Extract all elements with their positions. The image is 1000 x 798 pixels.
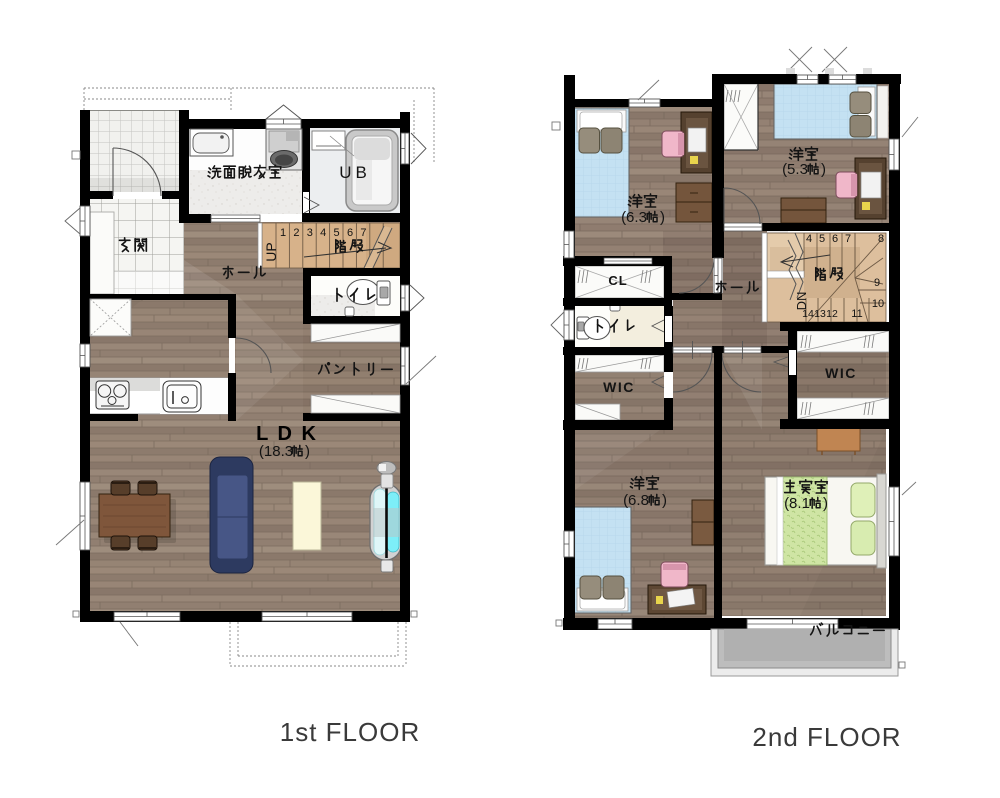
svg-text:7: 7 — [845, 233, 851, 245]
svg-text:7: 7 — [360, 227, 366, 239]
svg-text:5: 5 — [334, 227, 340, 239]
svg-text:5: 5 — [819, 233, 825, 245]
svg-text:1: 1 — [280, 227, 286, 239]
svg-text:): ) — [662, 492, 667, 509]
svg-text:4: 4 — [806, 233, 812, 245]
svg-text:(6.3: (6.3 — [621, 209, 647, 226]
svg-text:WIC: WIC — [603, 379, 635, 395]
svg-text:8: 8 — [878, 233, 884, 245]
svg-text:(5.3: (5.3 — [782, 161, 808, 178]
svg-text:WIC: WIC — [825, 365, 857, 381]
svg-text:12: 12 — [826, 308, 838, 320]
svg-text:4: 4 — [320, 227, 326, 239]
svg-text:(18.3: (18.3 — [259, 443, 293, 460]
svg-text:UP: UP — [263, 242, 279, 261]
svg-text:9: 9 — [874, 277, 880, 289]
svg-text:DN: DN — [794, 292, 809, 311]
svg-text:3: 3 — [307, 227, 313, 239]
svg-text:): ) — [823, 495, 828, 512]
svg-text:2: 2 — [293, 227, 299, 239]
svg-text:(8.1: (8.1 — [784, 495, 810, 512]
svg-text:1st FLOOR: 1st FLOOR — [280, 717, 420, 747]
svg-text:UB: UB — [339, 163, 371, 182]
svg-text:CL: CL — [608, 273, 627, 288]
svg-text:2nd FLOOR: 2nd FLOOR — [752, 722, 901, 752]
svg-text:L D K: L D K — [256, 423, 318, 445]
svg-text:6: 6 — [832, 233, 838, 245]
svg-text:13: 13 — [814, 308, 826, 320]
svg-text:11: 11 — [851, 308, 862, 320]
svg-text:): ) — [305, 443, 310, 460]
svg-text:6: 6 — [347, 227, 353, 239]
svg-text:(6.8: (6.8 — [623, 492, 649, 509]
svg-text:): ) — [660, 209, 665, 226]
svg-text:10: 10 — [872, 298, 884, 310]
svg-text:): ) — [821, 161, 826, 178]
